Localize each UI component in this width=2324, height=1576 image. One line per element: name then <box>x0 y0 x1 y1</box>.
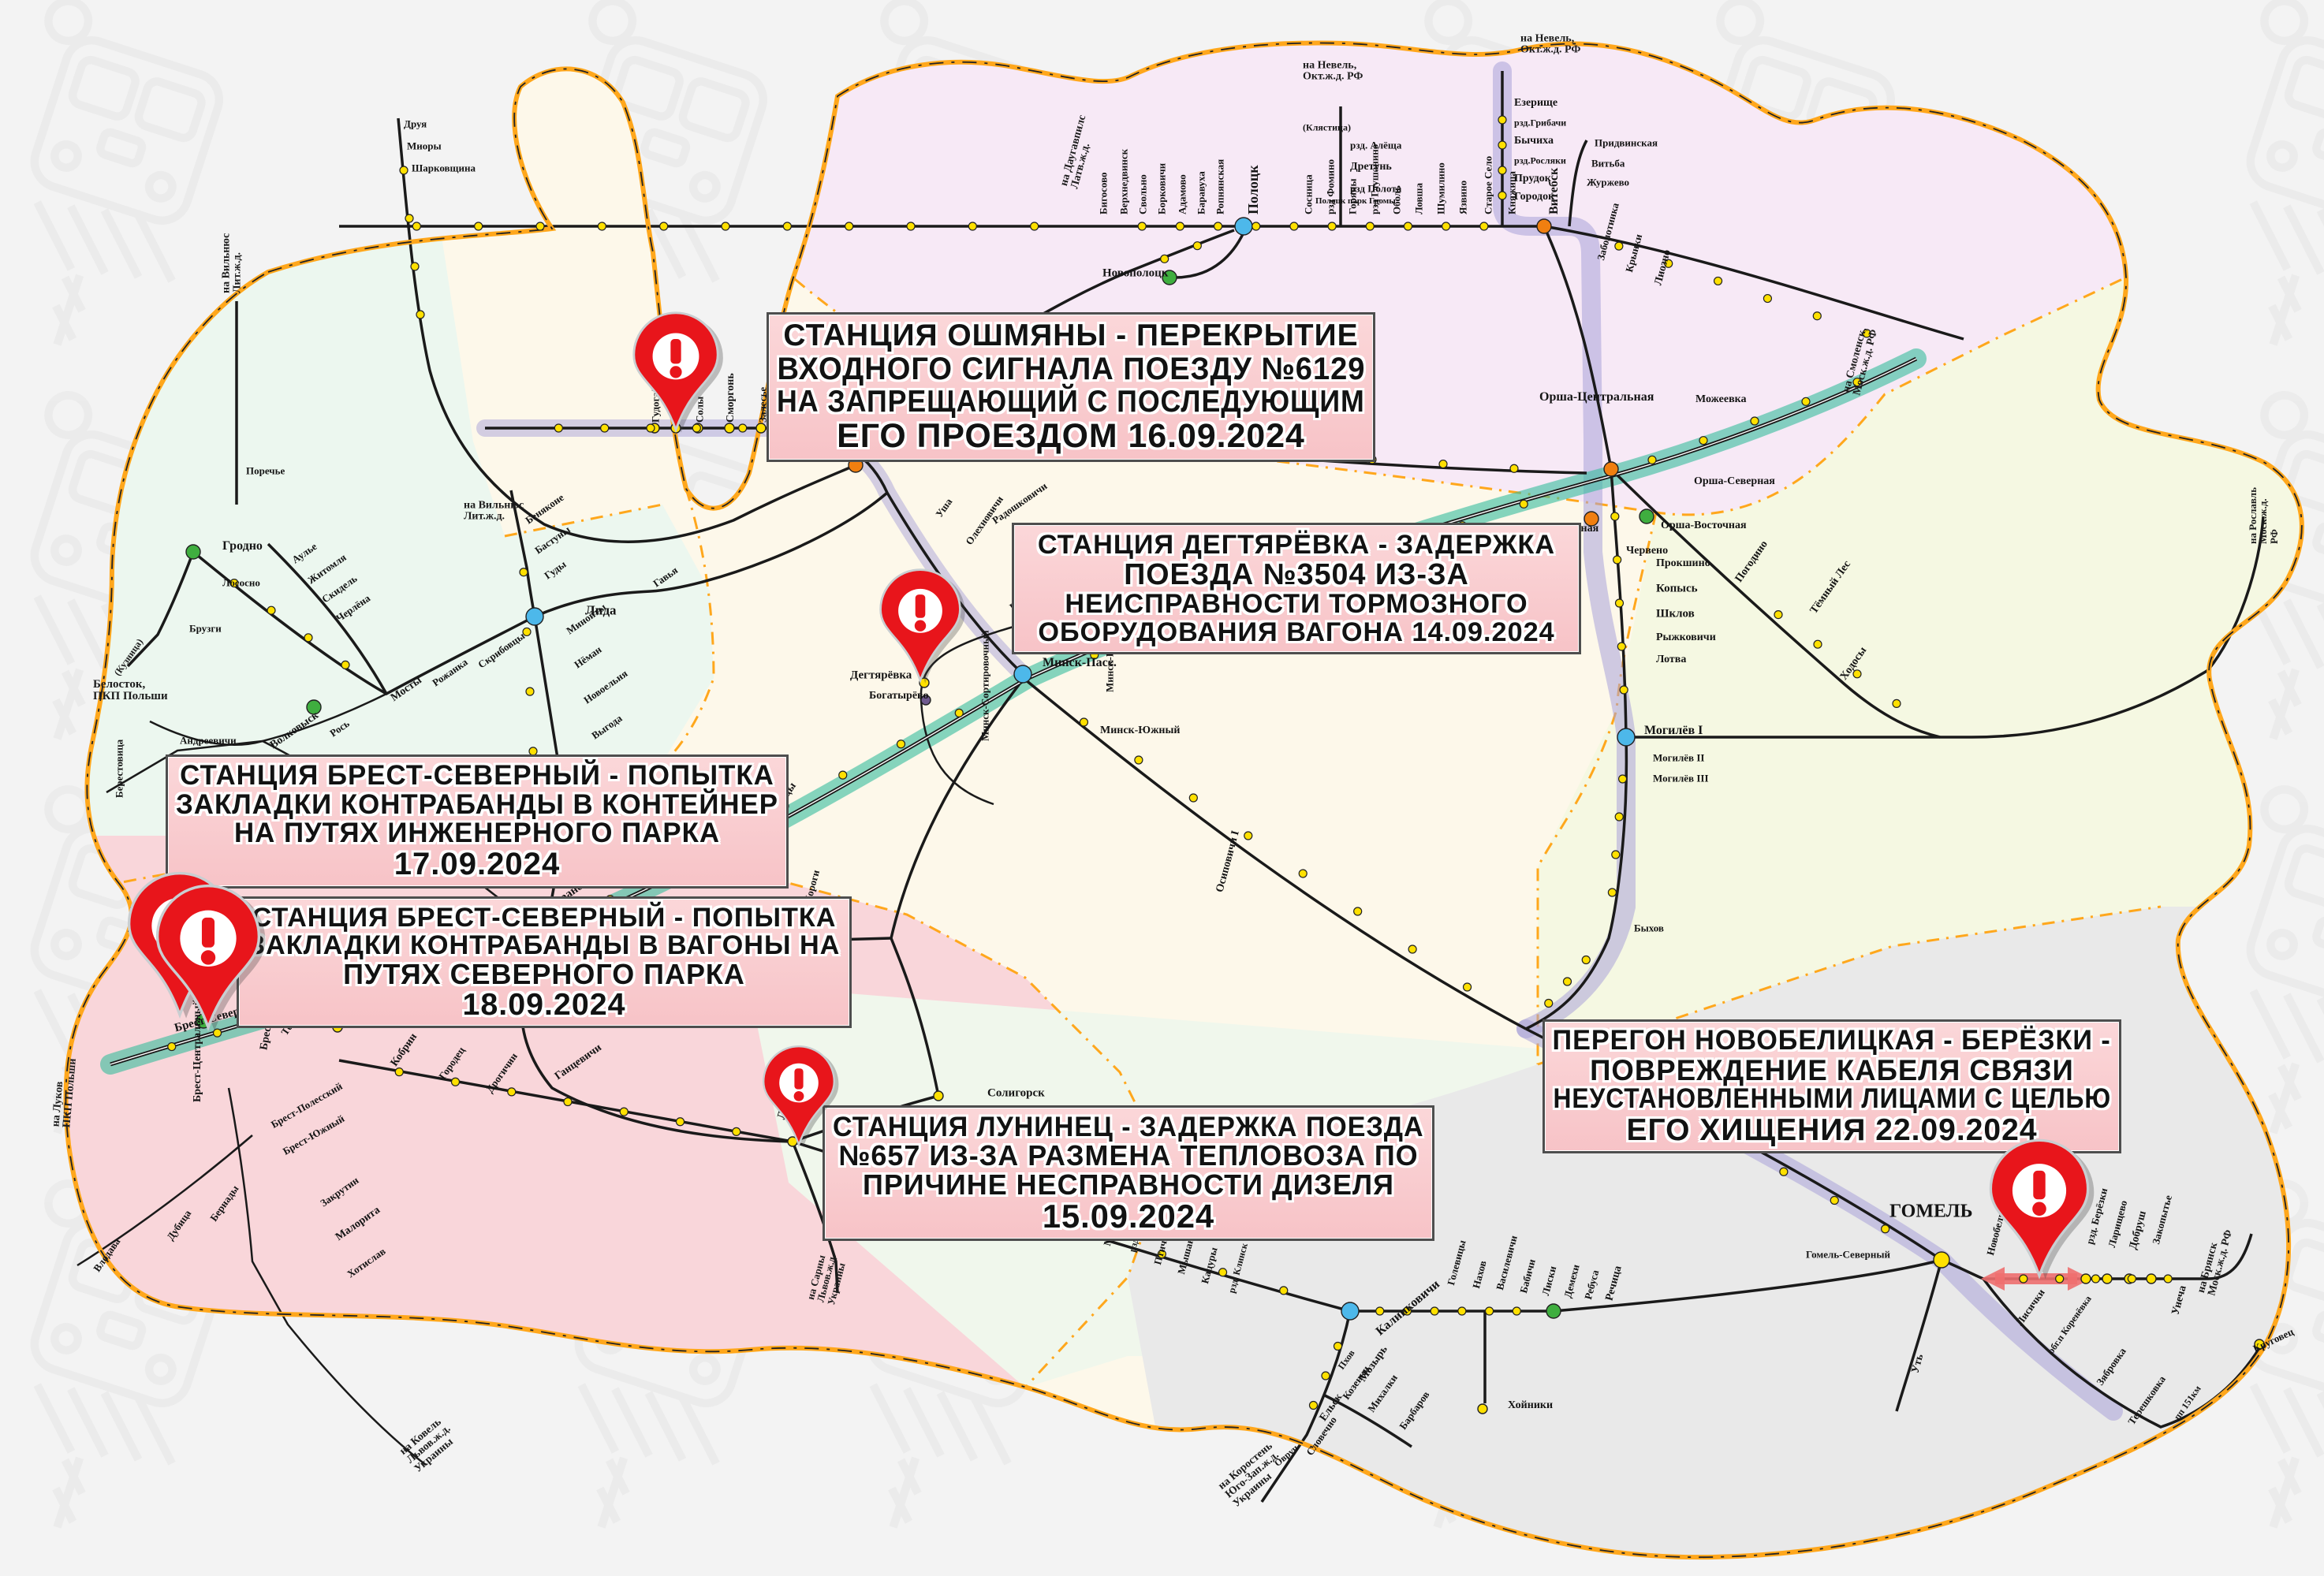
map-pin <box>158 886 266 1031</box>
incident-pins <box>0 0 2324 1576</box>
map-pin <box>1990 1140 2094 1279</box>
map-pin <box>763 1046 838 1147</box>
map-pin <box>634 313 723 433</box>
map-pin <box>881 570 965 684</box>
railway-incident-map: БигосовоВерхнедвинскСвольноБорковичиАдам… <box>0 0 2324 1576</box>
